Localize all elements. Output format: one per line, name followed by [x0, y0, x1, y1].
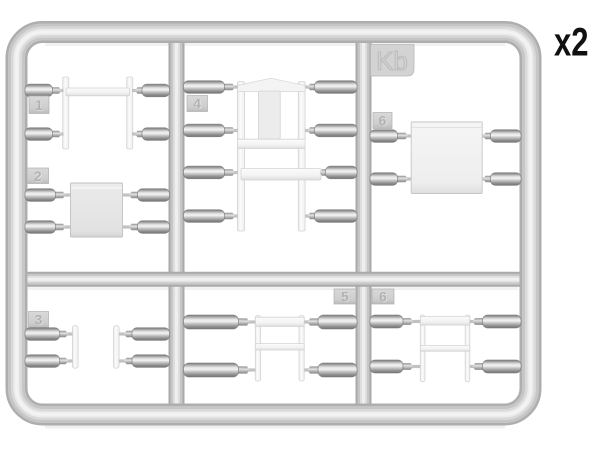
- svg-text:2: 2: [34, 168, 42, 184]
- svg-text:3: 3: [35, 312, 43, 328]
- svg-text:5: 5: [341, 289, 349, 305]
- svg-text:x2: x2: [554, 21, 589, 65]
- svg-text:Kb: Kb: [376, 46, 408, 76]
- svg-text:1: 1: [35, 97, 43, 113]
- svg-text:6: 6: [379, 289, 387, 305]
- svg-text:6: 6: [379, 113, 387, 129]
- svg-text:4: 4: [193, 96, 201, 112]
